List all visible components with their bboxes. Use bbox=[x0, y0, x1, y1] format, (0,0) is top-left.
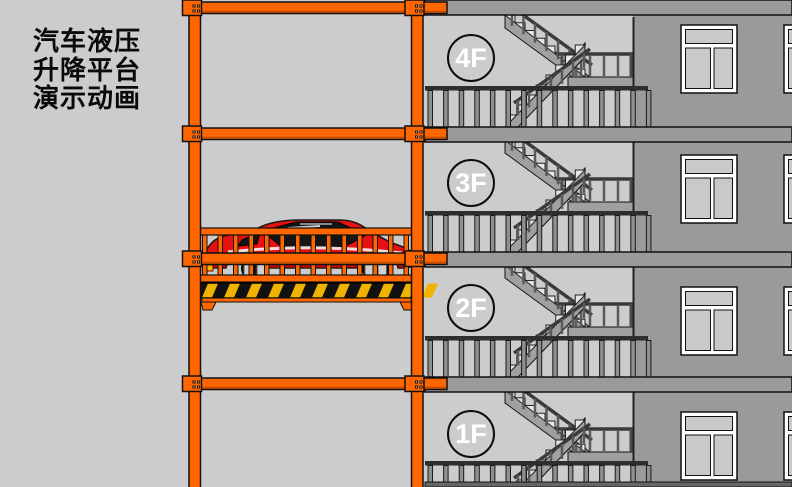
title: 汽车液压 升降平台 演示动画 bbox=[33, 27, 173, 113]
animation-stage: 汽车液压 升降平台 演示动画 4F 3F 2F 1F bbox=[0, 0, 792, 487]
title-line-3: 演示动画 bbox=[33, 84, 173, 113]
floor-badge-4f: 4F bbox=[447, 34, 495, 82]
title-line-2: 升降平台 bbox=[33, 56, 173, 85]
floor-badge-1f-label: 1F bbox=[455, 419, 487, 450]
floor-badge-3f-label: 3F bbox=[455, 168, 487, 199]
title-line-1: 汽车液压 bbox=[33, 27, 173, 56]
floor-badge-2f-label: 2F bbox=[455, 293, 487, 324]
floor-badge-1f: 1F bbox=[447, 410, 495, 458]
window bbox=[681, 412, 737, 480]
window bbox=[681, 25, 737, 93]
window bbox=[681, 155, 737, 223]
window bbox=[784, 412, 792, 480]
floor-badge-3f: 3F bbox=[447, 159, 495, 207]
window bbox=[784, 25, 792, 93]
window bbox=[784, 287, 792, 355]
floor-badge-2f: 2F bbox=[447, 284, 495, 332]
floor-badge-4f-label: 4F bbox=[455, 43, 487, 74]
window bbox=[784, 155, 792, 223]
window bbox=[681, 287, 737, 355]
